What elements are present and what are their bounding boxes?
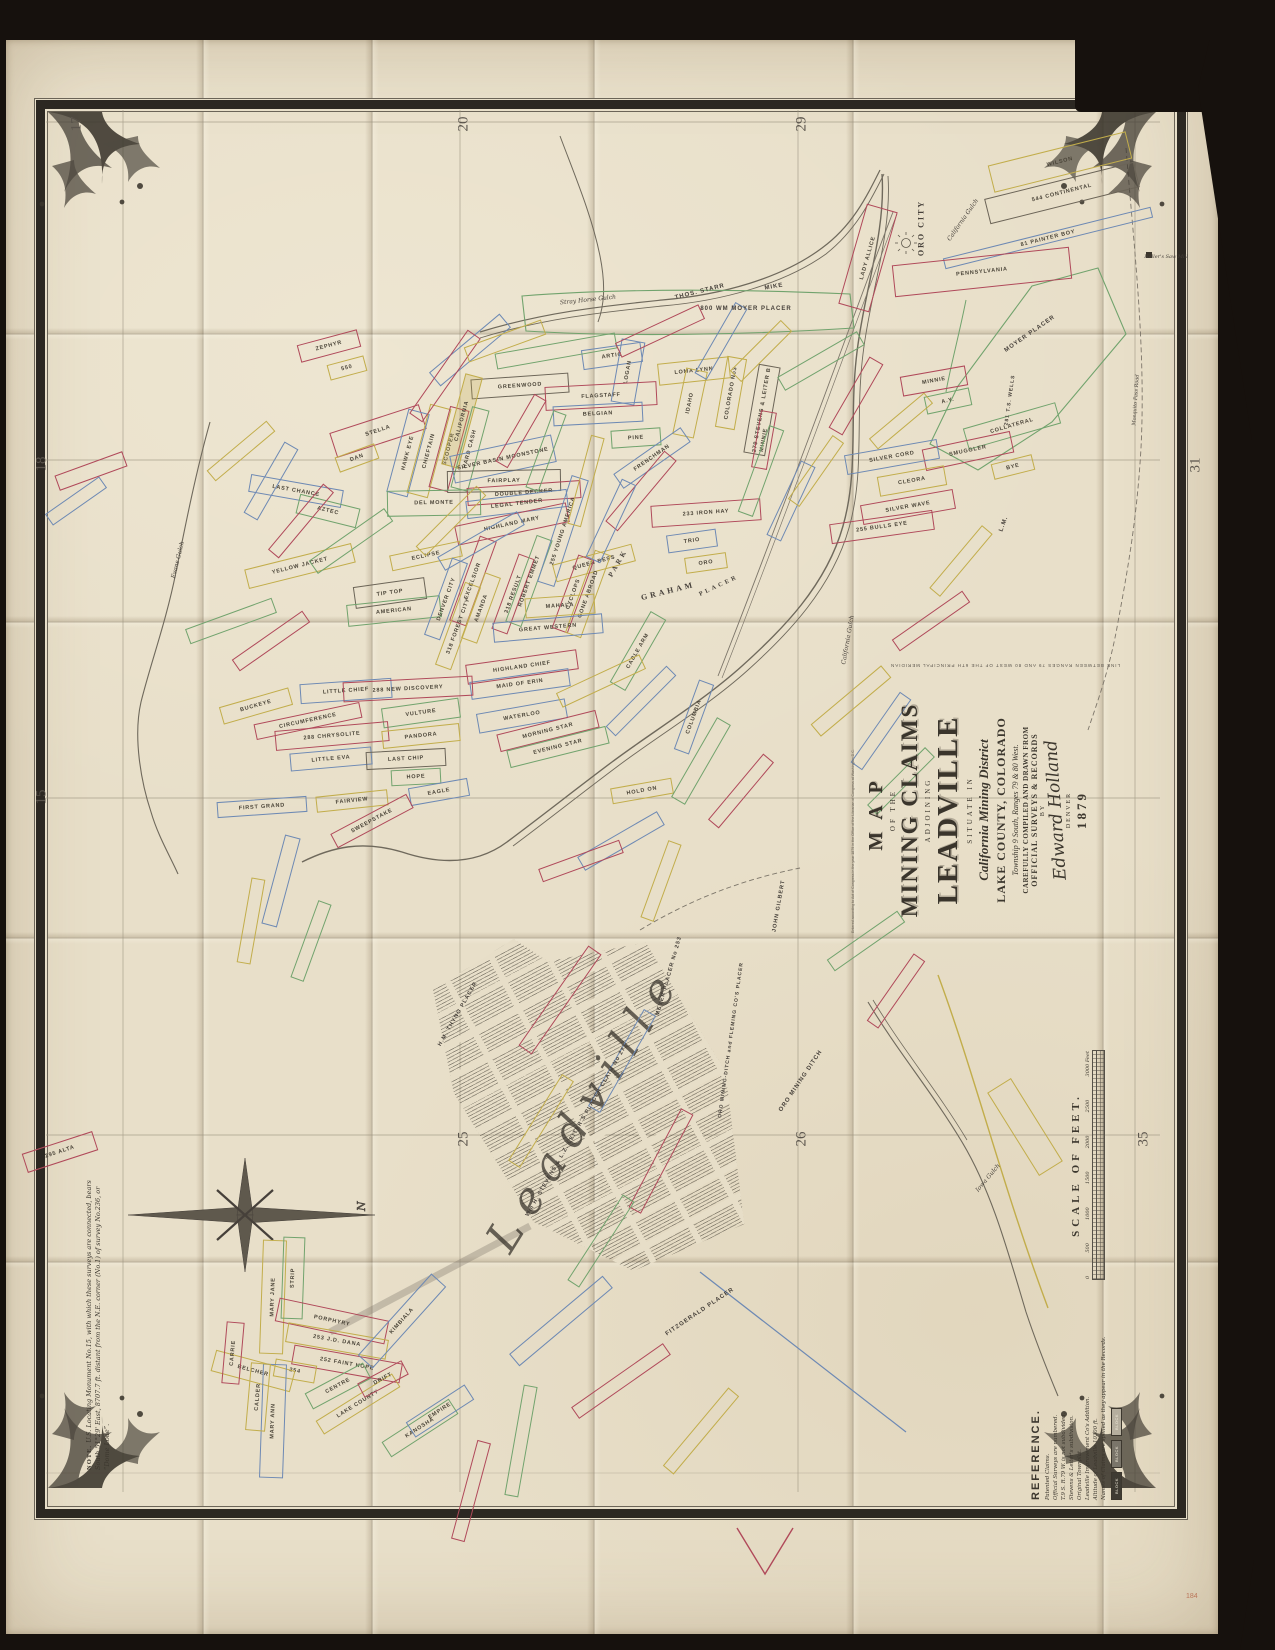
reference-line: Patented Claims.: [1044, 1350, 1052, 1500]
title-of-the: OF THE: [889, 675, 897, 945]
section-number: 26: [794, 1132, 811, 1147]
reference-line: Stevens & Leiter's subdivision.: [1068, 1350, 1076, 1500]
note-text: U.S. Locating Monument No.15, with which…: [85, 1180, 111, 1470]
title-mining-claims: MINING CLAIMS: [897, 675, 923, 945]
title-county: LAKE COUNTY, COLORADO: [994, 675, 1009, 945]
title-leadville: LEADVILLE: [932, 675, 965, 945]
reference-line: Leadville Improvement Co's Addition.: [1084, 1350, 1092, 1500]
scale-ticks: 050010001500200025003000 Feet: [1085, 1050, 1091, 1280]
title-year: 1879: [1074, 675, 1090, 945]
reference-line: Altitude of Leadville 10300 ft.: [1092, 1350, 1100, 1500]
photo-background: [130, 0, 190, 28]
reference-line: T.9 S. R.79 W. is not subdivided.: [1060, 1350, 1068, 1500]
title-official: OFFICIAL SURVEYS & RECORDS: [1030, 675, 1039, 945]
title-map: MAP: [865, 675, 888, 945]
section-number: 35: [1136, 1132, 1153, 1147]
scale-tick-label: 2500: [1085, 1100, 1091, 1113]
photographed-map: N Leadville WILSON544 CONTIN: [0, 0, 1275, 1650]
title-situate-in: SITUATE IN: [966, 675, 974, 945]
title-township: Township 9 South, Ranges 79 & 80 West.: [1011, 675, 1020, 945]
section-number: 15: [34, 790, 51, 805]
reference-line: Names of Claims are spelled as they appe…: [1100, 1350, 1108, 1500]
scale-tick-label: 1500: [1085, 1171, 1091, 1184]
section-number: 18: [34, 457, 51, 472]
title-district: California Mining District: [976, 675, 992, 945]
section-number: 20: [456, 117, 473, 132]
block-swatch: BLOCK: [1111, 1440, 1122, 1468]
scale-tick-label: 500: [1085, 1243, 1091, 1253]
scale-block: SCALE OF FEET. 050010001500200025003000 …: [1070, 1050, 1130, 1280]
scale-tick-label: 0: [1085, 1276, 1091, 1279]
title-compiled: CAREFULLY COMPILED AND DRAWN FROM: [1022, 675, 1030, 945]
reference-legend: REFERENCE. Patented Claims.Official Surv…: [1030, 1350, 1150, 1500]
copyright-line: Entered according to Act of Congress in …: [851, 843, 855, 933]
section-number: 17: [69, 117, 86, 132]
surveyor-note: NOTE. U.S. Locating Monument No.15, with…: [85, 1175, 150, 1470]
scale-title: SCALE OF FEET.: [1070, 1050, 1082, 1280]
reference-lines: Patented Claims.Official Surveys are num…: [1044, 1350, 1108, 1500]
note-label: NOTE.: [86, 1445, 93, 1470]
reference-title: REFERENCE.: [1030, 1350, 1042, 1500]
photo-background: [840, 0, 1100, 38]
scale-tick-label: 3000 Feet: [1085, 1051, 1091, 1076]
margin-mark: 184: [1186, 1593, 1198, 1600]
title-block: MAP OF THE MINING CLAIMS ADJOINING LEADV…: [865, 675, 1115, 945]
section-number: 31: [1188, 458, 1205, 473]
scale-tick-label: 2000: [1085, 1136, 1091, 1149]
reference-line: Official Surveys are numbered.: [1052, 1350, 1060, 1500]
range-line-label: LINE BETWEEN RANGES 79 AND 80 WEST OF TH…: [875, 663, 1135, 668]
scale-tick-label: 1000: [1085, 1207, 1091, 1220]
block-swatch: BLOCK: [1111, 1408, 1122, 1436]
block-swatch: BLOCK: [1111, 1472, 1122, 1500]
reference-swatches: BLOCKBLOCKBLOCK: [1111, 1350, 1122, 1500]
section-number: 29: [794, 117, 811, 132]
title-adjoining: ADJOINING: [924, 675, 932, 945]
reference-line: Original Townplat.: [1076, 1350, 1084, 1500]
section-number: 25: [456, 1132, 473, 1147]
scale-bar: [1092, 1050, 1105, 1280]
